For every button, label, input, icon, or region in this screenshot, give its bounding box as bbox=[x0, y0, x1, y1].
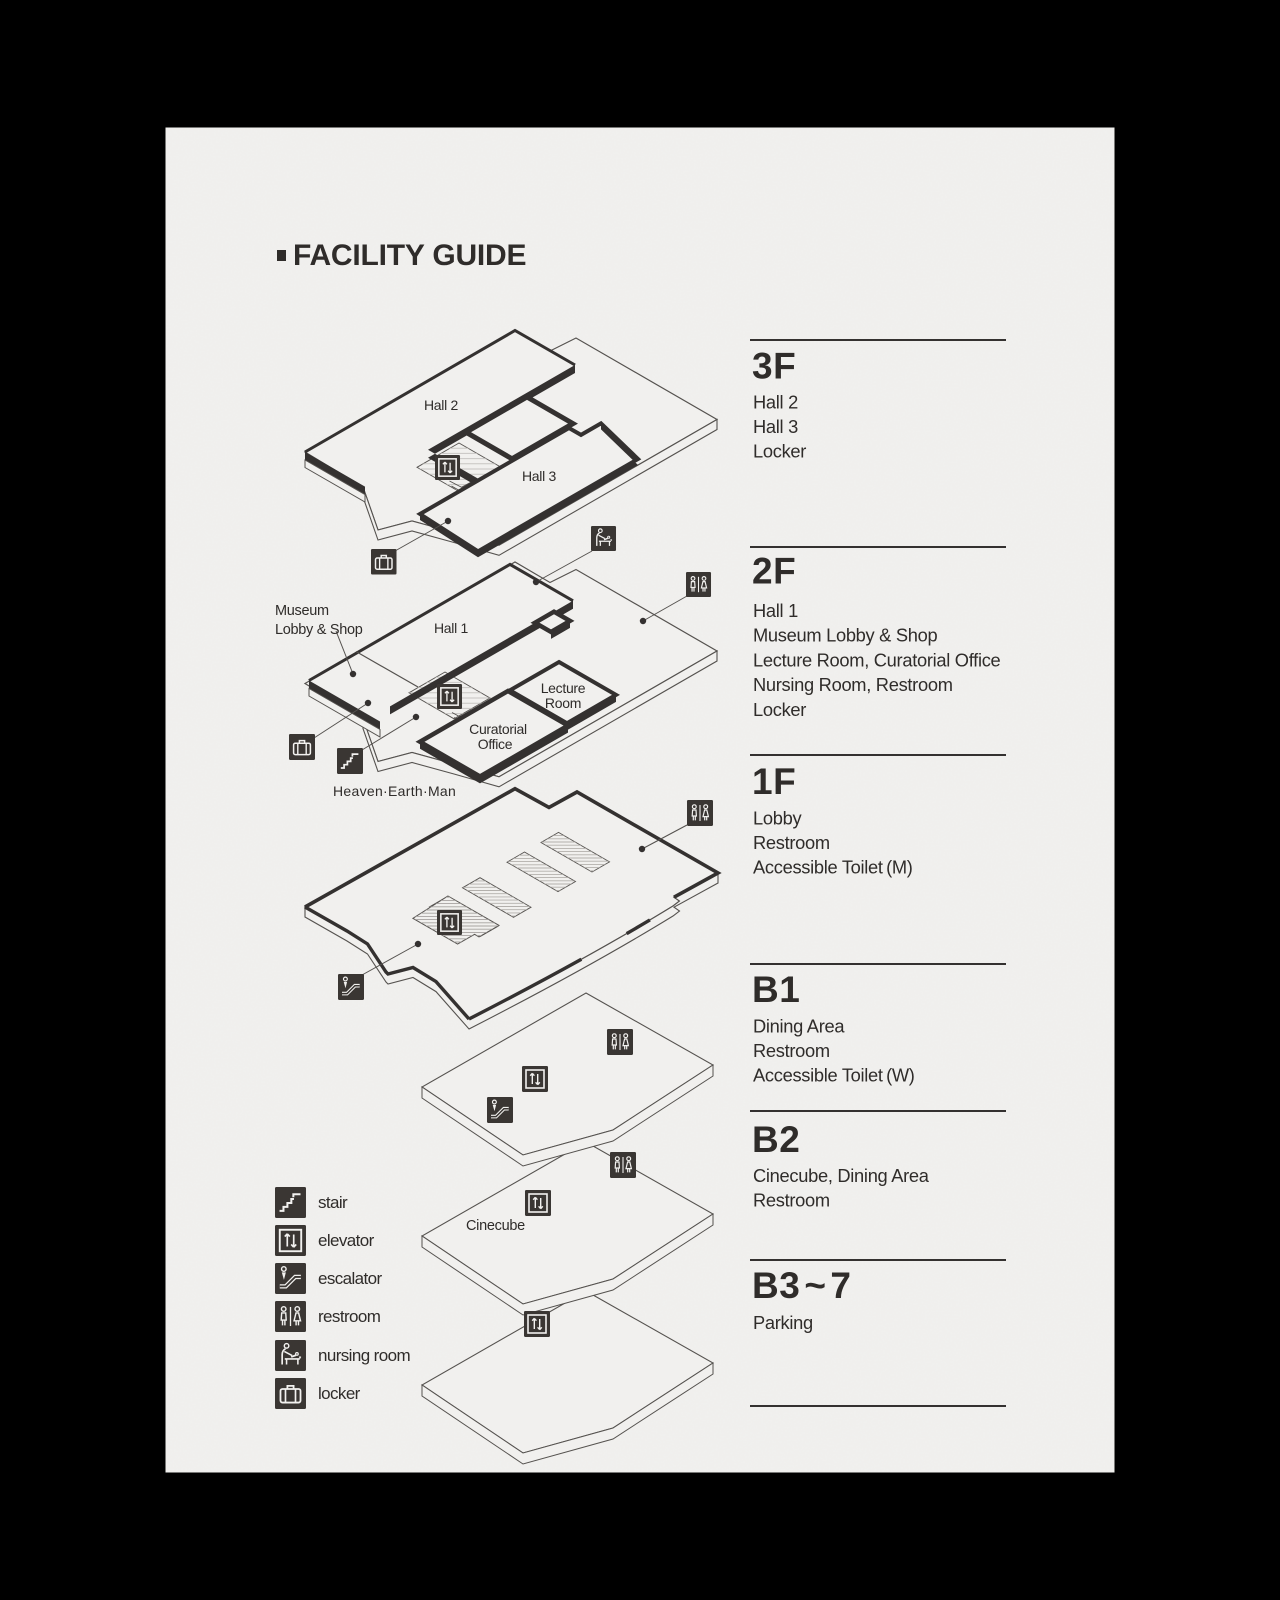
svg-text:Dining Area: Dining Area bbox=[753, 1015, 845, 1036]
svg-text:Cinecube, Dining Area: Cinecube, Dining Area bbox=[753, 1165, 930, 1186]
svg-text:Locker: Locker bbox=[753, 441, 806, 462]
svg-text:Museum: Museum bbox=[275, 603, 329, 619]
svg-text:restroom: restroom bbox=[318, 1307, 381, 1326]
svg-text:2F: 2F bbox=[752, 551, 796, 592]
svg-text:Lobby & Shop: Lobby & Shop bbox=[275, 622, 363, 638]
svg-text:Lecture: Lecture bbox=[541, 680, 586, 696]
svg-text:locker: locker bbox=[318, 1384, 361, 1403]
svg-text:Heaven·Earth·Man: Heaven·Earth·Man bbox=[333, 783, 456, 799]
svg-text:B1: B1 bbox=[752, 969, 800, 1010]
svg-text:Curatorial: Curatorial bbox=[469, 721, 527, 737]
svg-text:nursing room: nursing room bbox=[318, 1346, 410, 1365]
svg-text:Accessible Toilet (W): Accessible Toilet (W) bbox=[753, 1065, 915, 1086]
svg-text:Hall 1: Hall 1 bbox=[434, 620, 469, 636]
svg-text:1F: 1F bbox=[752, 761, 796, 802]
svg-text:Locker: Locker bbox=[753, 699, 806, 720]
svg-text:elevator: elevator bbox=[318, 1231, 375, 1250]
svg-text:Parking: Parking bbox=[753, 1312, 813, 1333]
svg-text:Lecture Room, Curatorial Offic: Lecture Room, Curatorial Office bbox=[753, 649, 1001, 670]
svg-text:Hall 2: Hall 2 bbox=[753, 391, 798, 412]
svg-text:Restroom: Restroom bbox=[753, 1040, 830, 1061]
svg-text:Hall 3: Hall 3 bbox=[753, 416, 798, 437]
svg-text:3F: 3F bbox=[752, 346, 796, 387]
svg-text:escalator: escalator bbox=[318, 1269, 383, 1288]
svg-text:Hall 3: Hall 3 bbox=[522, 468, 557, 484]
svg-text:stair: stair bbox=[318, 1193, 348, 1212]
svg-text:FACILITY GUIDE: FACILITY GUIDE bbox=[293, 239, 526, 272]
svg-text:Room: Room bbox=[545, 695, 581, 711]
svg-text:Cinecube: Cinecube bbox=[466, 1218, 525, 1234]
svg-text:Lobby: Lobby bbox=[753, 807, 802, 828]
svg-text:Restroom: Restroom bbox=[753, 832, 830, 853]
svg-text:Hall 2: Hall 2 bbox=[424, 397, 459, 413]
svg-text:Hall 1: Hall 1 bbox=[753, 600, 798, 621]
svg-text:Nursing Room, Restroom: Nursing Room, Restroom bbox=[753, 674, 953, 695]
svg-text:Office: Office bbox=[478, 736, 513, 752]
svg-text:B2: B2 bbox=[752, 1119, 800, 1160]
svg-text:Accessible Toilet (M): Accessible Toilet (M) bbox=[753, 857, 913, 878]
svg-text:Museum Lobby & Shop: Museum Lobby & Shop bbox=[753, 625, 937, 646]
svg-text:Restroom: Restroom bbox=[753, 1190, 830, 1211]
